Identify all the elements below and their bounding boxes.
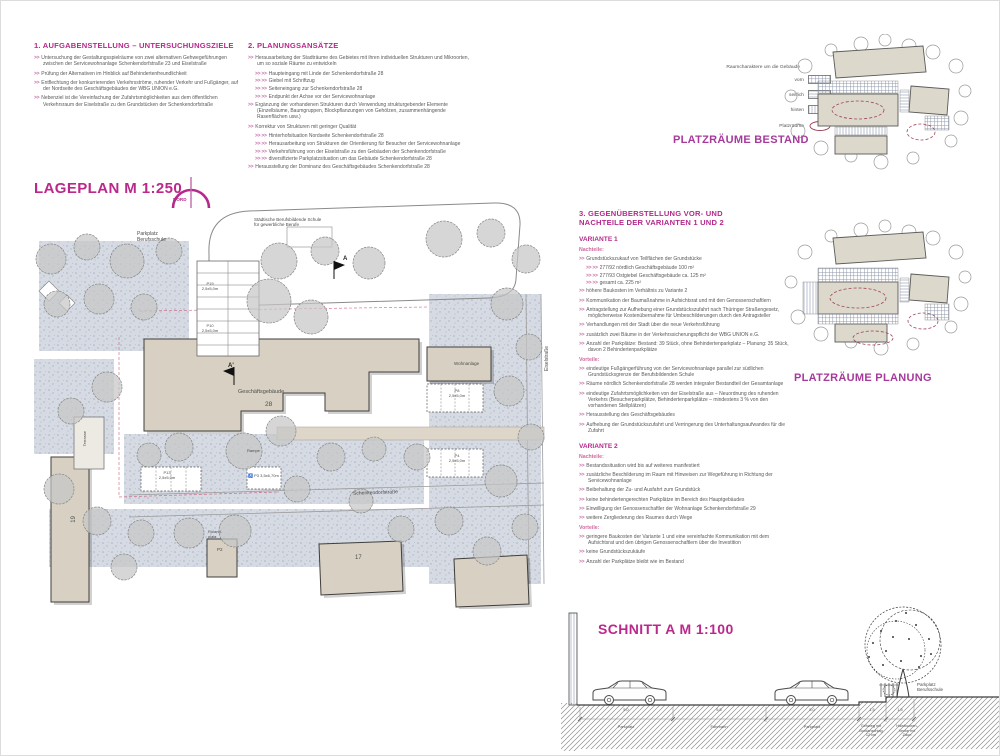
segment-label: Hainbuchen- hecke mit Zaun xyxy=(891,724,923,738)
label-geschaeftsgebaeude: Geschäftsgebäude xyxy=(238,389,284,396)
list-item: >>geringere Baukosten der Variante 1 und… xyxy=(579,534,791,547)
label-hausnummer-17: 17 xyxy=(355,555,362,562)
list-item: >>Entflechtung der konkurrierenden Verke… xyxy=(34,80,240,93)
bullet-marker: >> xyxy=(579,472,584,478)
segment-label: Fahrbahn xyxy=(694,724,744,729)
bullet-marker: >> xyxy=(579,559,584,565)
bullet-text: keine behindertengerechten Parkplätze im… xyxy=(586,497,744,503)
section-aufgabenstellung: 1. AUFGABENSTELLUNG – UNTERSUCHUNGSZIELE… xyxy=(34,41,240,111)
bullet-marker: >> xyxy=(34,80,39,86)
label-parkplatz-berufsschule-schnitt: Parkplatz Berufsschule xyxy=(917,682,943,693)
nachteile-label: Nachteile: xyxy=(579,454,791,460)
bullet-marker: >> xyxy=(34,71,39,77)
bullet-marker: >> xyxy=(579,497,584,503)
label-eiselstrasse: Eiselstraße xyxy=(544,346,550,371)
bullet-marker: >> xyxy=(579,366,584,372)
building-17-footprint xyxy=(319,541,403,595)
variante2-title: VARIANTE 2 xyxy=(579,443,791,450)
segment-label: Parkplatz xyxy=(601,724,651,729)
wheelchair-icon: ♿ xyxy=(248,473,253,478)
dimension-value: 5,0 xyxy=(611,708,641,712)
label-school: Städtische Berufsbildende Schule für gew… xyxy=(254,217,379,228)
bullet-text: höhere Baukosten im Verhältnis zu Varian… xyxy=(586,288,687,294)
bullet-marker: >> xyxy=(579,341,584,347)
list-item: >>Ergänzung der vorhandenen Strukturen d… xyxy=(248,102,476,121)
bullet-marker: >> xyxy=(579,381,584,387)
section-title: 2. PLANUNGSANSÄTZE xyxy=(248,41,476,50)
bullet-marker: >> xyxy=(579,534,584,540)
bullet-marker: >> xyxy=(248,164,253,170)
label-marker-a: A xyxy=(343,256,347,262)
nachteile-label: Nachteile: xyxy=(579,247,791,253)
label-hausnummer-19: 19 xyxy=(71,516,78,523)
list-item: >>Herausarbeitung der Stadträume des Geb… xyxy=(248,55,476,68)
bullet-text: Hinterhofsituation Nordseite Schenkendor… xyxy=(269,133,384,139)
bullet-text: Bestandssituation wird bis auf weiteres … xyxy=(586,463,699,469)
bullet-text: keine Grundstückszukäufe xyxy=(586,549,645,555)
list-item: >>zusätzliche Beschilderung im Raum mit … xyxy=(579,472,791,485)
bullet-text: Endpunkt der Achse vor der Servicewohnan… xyxy=(269,94,376,100)
label-p3: ♿ P3 3,5x6,70m xyxy=(248,474,279,479)
bullet-marker: >> >> xyxy=(255,71,267,77)
label-p10: P10 2,5x5,0m xyxy=(194,324,226,334)
bullet-marker: >> xyxy=(579,307,584,313)
car-icon xyxy=(593,681,666,705)
bullet-text: Anzahl der Parkplätze bleibt wie im Best… xyxy=(586,559,684,565)
bullet-text: zusätzliche Beschilderung im Raum mit Hi… xyxy=(586,472,772,484)
list-item: >> >>Endpunkt der Achse vor der Servicew… xyxy=(255,94,476,100)
list-item: >>weitere Zergliederung des Raumes durch… xyxy=(579,515,791,521)
bullet-marker: >> xyxy=(579,487,584,493)
bullet-text: Beibehaltung der Zu- und Ausfahrt zum Gr… xyxy=(586,487,700,493)
siteplan-drawing xyxy=(29,199,549,609)
bullet-text: Haupteingang mit Linde der Schenkendorfs… xyxy=(269,71,384,77)
bullet-text: Giebel mit Schriftzug xyxy=(269,78,315,84)
bullet-text: Grundstückszukauf von Teilflächen der Gr… xyxy=(586,256,702,262)
label-hausnummer-28: 28 xyxy=(265,401,272,409)
bullet-marker: >> xyxy=(248,55,253,61)
section-title: 3. GEGENÜBERSTELLUNG VOR- UND NACHTEILE … xyxy=(579,209,769,227)
bullet-text: Ergänzung der vorhandenen Strukturen dur… xyxy=(255,102,448,121)
list-item: >> >>Verkehrsführung von der Eiselstraße… xyxy=(255,149,476,155)
bullet-marker: >> >> xyxy=(255,141,267,147)
bullet-marker: >> >> xyxy=(255,78,267,84)
bullet-text: 277/93 Ostgiebel Geschäftsgebäude ca. 12… xyxy=(600,273,706,279)
bullet-text: Korrektur von Strukturen mit geringer Qu… xyxy=(255,124,356,130)
list-item: >>Korrektur von Strukturen mit geringer … xyxy=(248,124,476,130)
bullet-text: geringere Baukosten der Variante 1 und e… xyxy=(586,534,769,546)
list-item: >>keine behindertengerechten Parkplätze … xyxy=(579,497,791,503)
list-item: >>Anzahl der Parkplätze bleibt wie im Be… xyxy=(579,559,791,565)
list-item: >> >>Seiteneingang zur Schenkendorfstraß… xyxy=(255,86,476,92)
dimension-value: 1,5 xyxy=(857,708,887,712)
label-rolandplatz: Roland- platz xyxy=(208,530,222,540)
segment-label: Gehweg mit Bordanschlag 12 cm xyxy=(852,724,890,738)
bullet-text: Nebenziel ist die Vereinfachung der Zufa… xyxy=(41,95,217,107)
list-item: >>Untersuchung der Gestaltungsspielräume… xyxy=(34,55,240,68)
list-item: >>Prüfung der Alternativen im Hinblick a… xyxy=(34,71,240,77)
label-p4: P4 2,5x5,0m xyxy=(441,454,473,464)
dimension-value: 5,5 xyxy=(704,708,734,712)
list-item: >>Nebenziel ist die Vereinfachung der Zu… xyxy=(34,95,240,108)
bullet-text: zusätzlich zwei Bäume in der Verkehrssic… xyxy=(586,332,759,338)
vorteile-label: Vorteile: xyxy=(579,525,791,531)
label-rampe: Rampe xyxy=(247,449,260,454)
list-item: >>Verhandlungen mit der Stadt über die n… xyxy=(579,322,791,328)
list-item: >>Grundstückszukauf von Teilflächen der … xyxy=(579,256,791,262)
list-item: >>keine Grundstückszukäufe xyxy=(579,549,791,555)
bullet-marker: >> xyxy=(579,422,584,428)
bullet-marker: >> xyxy=(579,506,584,512)
bullet-text: Kommunikation der Baumaßnahme in Aufsich… xyxy=(586,298,771,304)
bullet-marker: >> xyxy=(579,322,584,328)
list-item: >> >>277/93 Ostgiebel Geschäftsgebäude c… xyxy=(586,273,791,279)
list-item: >>Einwilligung der Genossenschaftler der… xyxy=(579,506,791,512)
bullet-marker: >> xyxy=(34,55,39,61)
car-icon xyxy=(775,681,848,705)
bullet-marker: >> >> xyxy=(255,149,267,155)
bullet-marker: >> >> xyxy=(255,156,267,162)
bullet-marker: >> >> xyxy=(255,86,267,92)
bullet-marker: >> xyxy=(579,463,584,469)
bullet-marker: >> xyxy=(579,391,584,397)
bullet-text: Entflechtung der konkurrierenden Verkehr… xyxy=(41,80,238,92)
label-p13: P13 2,5x5,0m xyxy=(151,471,183,481)
section-marker-a xyxy=(334,261,345,279)
list-item: >> >>Hinterhofsituation Nordseite Schenk… xyxy=(255,133,476,139)
platzraeume-bestand-diagram xyxy=(773,34,973,176)
presentation-board: 1. AUFGABENSTELLUNG – UNTERSUCHUNGSZIELE… xyxy=(0,0,1000,756)
bullet-marker: >> xyxy=(579,549,584,555)
section-gegenueberstellung: 3. GEGENÜBERSTELLUNG VOR- UND NACHTEILE … xyxy=(579,209,791,568)
bullet-text: Herausstellung der Dominanz des Geschäft… xyxy=(255,164,430,170)
bullet-text: Untersuchung der Gestaltungsspielräume v… xyxy=(41,55,227,67)
list-item: >>Bestandssituation wird bis auf weitere… xyxy=(579,463,791,469)
bullet-marker: >> >> xyxy=(586,273,598,279)
bullet-text: Herausarbeitung von Strukturen der Orien… xyxy=(269,141,461,147)
bullet-marker: >> xyxy=(579,332,584,338)
wall-section xyxy=(569,613,577,705)
list-item: >>Räume nördlich Schenkendorfstraße 28 w… xyxy=(579,381,791,387)
bullet-text: Anzahl der Parkplätze: Bestand: 39 Stück… xyxy=(586,341,788,353)
list-item: >> >>Herausarbeitung von Strukturen der … xyxy=(255,141,476,147)
planung-diagram-title: PLATZRÄUME PLANUNG xyxy=(794,372,932,384)
bullet-text: eindeutige Zufahrtsmöglichkeiten von der… xyxy=(586,391,778,410)
list-item: >>Anzahl der Parkplätze: Bestand: 39 Stü… xyxy=(579,341,791,354)
bestand-diagram-title: PLATZRÄUME BESTAND xyxy=(673,134,809,146)
list-item: >>eindeutige Zufahrtsmöglichkeiten von d… xyxy=(579,391,791,410)
label-wohnanlage: Wohnanlage xyxy=(454,361,496,366)
dimension-value: 5,0 xyxy=(797,708,827,712)
bullet-text: weitere Zergliederung des Raumes durch W… xyxy=(586,515,692,521)
bullet-text: Räume nördlich Schenkendorfstraße 28 wer… xyxy=(586,381,783,387)
label-p2: P2 xyxy=(217,547,223,552)
variante1-title: VARIANTE 1 xyxy=(579,236,791,243)
vorteile-label: Vorteile: xyxy=(579,357,791,363)
bullet-marker: >> xyxy=(248,102,253,108)
bullet-marker: >> xyxy=(579,515,584,521)
bullet-marker: >> xyxy=(248,124,253,130)
bullet-text: eindeutige Fußgängerführung von der Serv… xyxy=(586,366,763,378)
bullet-text: Verhandlungen mit der Stadt über die neu… xyxy=(586,322,719,328)
platzraeume-planung-diagram xyxy=(773,216,973,368)
schnitt-drawing xyxy=(561,599,1000,756)
label-p8: P8 2,5x5,0m xyxy=(441,389,473,399)
bullet-marker: >> >> xyxy=(586,265,598,271)
bullet-text: Herausarbeitung der Stadträume des Gebie… xyxy=(255,55,469,67)
lageplan-title: LAGEPLAN M 1:250 xyxy=(34,180,182,197)
bullet-marker: >> xyxy=(34,95,39,101)
bullet-text: Prüfung der Alternativen im Hinblick auf… xyxy=(41,71,186,77)
bullet-marker: >> >> xyxy=(586,280,598,286)
bullet-text: Einwilligung der Genossenschaftler der W… xyxy=(586,506,755,512)
list-item: >> >>Giebel mit Schriftzug xyxy=(255,78,476,84)
section-planungsansaetze: 2. PLANUNGSANSÄTZE >>Herausarbeitung der… xyxy=(248,41,476,174)
list-item: >>höhere Baukosten im Verhältnis zu Vari… xyxy=(579,288,791,294)
bullet-text: Aufhebung der Grundstückszufahrt und Ver… xyxy=(586,422,785,434)
list-item: >> >>gesamt ca. 225 m² xyxy=(586,280,791,286)
terrasse-structure xyxy=(74,417,104,469)
bullet-text: Antragstellung zur Aufhebung einer Grund… xyxy=(586,307,779,319)
bullet-marker: >> >> xyxy=(255,133,267,139)
list-item: >>Beibehaltung der Zu- und Ausfahrt zum … xyxy=(579,487,791,493)
list-item: >>Antragstellung zur Aufhebung einer Gru… xyxy=(579,307,791,320)
bullet-text: Herausstellung des Geschäftsgebäudes xyxy=(586,412,675,418)
list-item: >>eindeutige Fußgängerführung von der Se… xyxy=(579,366,791,379)
list-item: >> >>Haupteingang mit Linde der Schenken… xyxy=(255,71,476,77)
section-title: 1. AUFGABENSTELLUNG – UNTERSUCHUNGSZIELE xyxy=(34,41,240,50)
list-item: >> >>diversifizierte Parkplatzsituation … xyxy=(255,156,476,162)
label-terrasse: Terrasse xyxy=(83,431,88,446)
bullet-text: gesamt ca. 225 m² xyxy=(600,280,641,286)
list-item: >>Herausstellung des Geschäftsgebäudes xyxy=(579,412,791,418)
list-item: >> >>277/92 nördlich Geschäftsgebäude 10… xyxy=(586,265,791,271)
list-item: >>Aufhebung der Grundstückszufahrt und V… xyxy=(579,422,791,435)
bullet-marker: >> xyxy=(579,256,584,262)
bullet-text: Verkehrsführung von der Eiselstraße zu d… xyxy=(269,149,446,155)
list-item: >>Kommunikation der Baumaßnahme in Aufsi… xyxy=(579,298,791,304)
list-item: >>Herausstellung der Dominanz des Geschä… xyxy=(248,164,476,170)
bullet-text: diversifizierte Parkplatzsituation um da… xyxy=(269,156,432,162)
bullet-text: Seiteneingang zur Schenkendorfstraße 28 xyxy=(269,86,363,92)
bullet-marker: >> xyxy=(579,298,584,304)
dimension-value: 1,5 xyxy=(885,708,915,712)
label-p19: P19 2,5x5,0m xyxy=(194,282,226,292)
bullet-marker: >> xyxy=(579,288,584,294)
label-marker-a-prime: A' xyxy=(228,363,234,369)
bullet-marker: >> >> xyxy=(255,94,267,100)
bullet-marker: >> xyxy=(579,412,584,418)
label-parkplatz-berufsschule: Parkplatz Berufsschule xyxy=(137,231,166,243)
segment-label: Parkplatz xyxy=(787,724,837,729)
bullet-text: 277/92 nördlich Geschäftsgebäude 100 m² xyxy=(600,265,695,271)
list-item: >>zusätzlich zwei Bäume in der Verkehrss… xyxy=(579,332,791,338)
